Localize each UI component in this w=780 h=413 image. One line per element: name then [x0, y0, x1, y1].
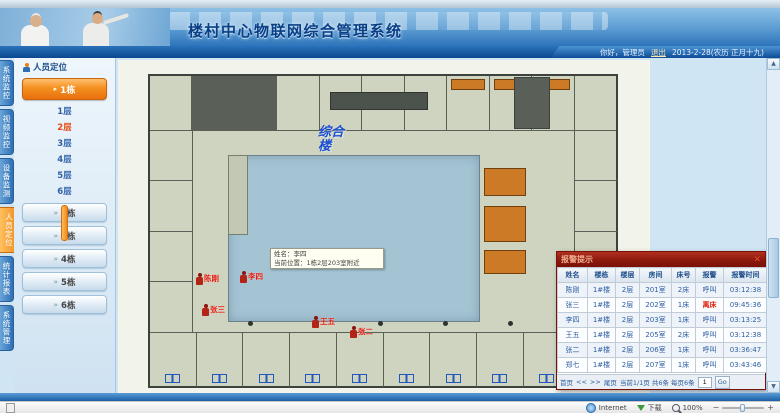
table-row[interactable]: 陈刚 1#楼 2层 201室 2床 呼叫 03:12:38 [558, 283, 768, 298]
col-header-floor: 楼层 [616, 268, 640, 283]
zoom-slider-knob[interactable] [740, 404, 745, 412]
person-marker-icon [350, 326, 357, 338]
cell-floor: 2层 [616, 358, 640, 373]
banner-photo [0, 8, 170, 46]
download-label: 下载 [648, 403, 662, 413]
table-row[interactable]: 李四 1#楼 2层 203室 1床 呼叫 03:13:25 [558, 313, 768, 328]
sidebar-building-6-button[interactable]: 6栋 [22, 295, 107, 314]
person-marker[interactable]: 李四 [240, 271, 263, 283]
building-1-label: 1栋 [60, 83, 75, 96]
user-info-bar: 你好，管理员 退出 2013-2-28(农历 正月十九) [600, 46, 764, 58]
table-row[interactable]: 郑七 1#楼 2层 207室 1床 呼叫 03:43:46 [558, 358, 768, 373]
scrollbar-thumb[interactable] [768, 238, 779, 298]
person-marker-name: 王五 [320, 316, 335, 327]
header-banner: 楼村中心物联网综合管理系统 [0, 8, 780, 46]
bed-icon [492, 374, 507, 383]
person-marker-icon [202, 304, 209, 316]
building-6-label: 6栋 [61, 299, 75, 311]
person-marker-name: 李四 [248, 271, 263, 282]
cell-floor: 2层 [616, 313, 640, 328]
zoom-indicator[interactable]: 100% [672, 404, 703, 412]
tooltip-name-line: 姓名：李四 [274, 250, 380, 259]
cell-alarm: 离床 [696, 298, 724, 313]
cell-floor: 2层 [616, 328, 640, 343]
col-header-building: 楼栋 [588, 268, 616, 283]
cell-alarm: 呼叫 [696, 328, 724, 343]
sidebar-floor-2[interactable]: 2层 [14, 119, 115, 135]
nav-tab-statistics[interactable]: 统计报表 [0, 256, 14, 302]
cell-time: 03:36:47 [724, 343, 768, 358]
sidebar-building-1-button[interactable]: 1栋 [22, 78, 107, 100]
magnifier-icon [672, 404, 680, 412]
pagination-bar: 首页 << >> 尾页 当前1/1页 共6条 每页6条 Go [557, 374, 765, 389]
room [150, 333, 197, 387]
person-marker[interactable]: 张三 [202, 304, 225, 316]
cell-bed: 2床 [672, 328, 696, 343]
alarm-popup-title: 报警提示 [561, 254, 593, 265]
security-zone-indicator: Internet [586, 403, 627, 413]
room [477, 333, 524, 387]
room [290, 333, 337, 387]
arrow-icon [54, 231, 59, 241]
person-positioning-icon [23, 63, 30, 72]
zoom-level-label: 100% [683, 404, 703, 412]
cell-time: 09:45:36 [724, 298, 768, 313]
col-header-room: 房间 [640, 268, 672, 283]
zoom-slider-track[interactable] [722, 407, 764, 409]
sidebar-floor-4[interactable]: 4层 [14, 151, 115, 167]
cell-name: 郑七 [558, 358, 588, 373]
column-dot [378, 321, 383, 326]
room [277, 76, 319, 130]
table-row[interactable]: 张三 1#楼 2层 202室 1床 离床 09:45:36 [558, 298, 768, 313]
main-area: 系统监控 视频监控 设备监测 人员定位 统计报表 系统管理 人员定位 1栋 1层… [0, 58, 780, 393]
bed-icon [446, 374, 461, 383]
page-number-input[interactable] [698, 377, 712, 388]
table-row[interactable]: 王五 1#楼 2层 205室 2床 呼叫 03:12:38 [558, 328, 768, 343]
panel-collapse-handle[interactable] [61, 205, 68, 241]
room [197, 333, 244, 387]
cell-floor: 2层 [616, 298, 640, 313]
floor-list: 1层 2层 3层 4层 5层 6层 [14, 103, 115, 199]
room [150, 130, 192, 181]
person-marker-icon [196, 273, 203, 285]
room [150, 232, 192, 283]
building-4-label: 4栋 [61, 253, 75, 265]
marker-tooltip: 姓名：李四 当前位置：1栋2层203室附近 [270, 248, 384, 269]
browser-edge-strip [0, 0, 780, 8]
room [235, 76, 277, 130]
person-marker-name: 张三 [210, 304, 225, 315]
cell-building: 1#楼 [588, 298, 616, 313]
cell-name: 陈刚 [558, 283, 588, 298]
furniture-block [484, 206, 526, 242]
dark-room [514, 77, 550, 129]
scroll-up-icon[interactable]: ▲ [767, 58, 780, 70]
pagination-last-button[interactable]: 尾页 [604, 377, 617, 387]
alarm-table-header-row: 姓名 楼栋 楼层 房间 床号 报警 报警时间 [558, 268, 768, 283]
cell-building: 1#楼 [588, 283, 616, 298]
scroll-down-icon[interactable]: ▼ [767, 381, 780, 393]
col-header-bed: 床号 [672, 268, 696, 283]
arrow-icon [54, 208, 59, 218]
photo-person-body [21, 25, 49, 46]
person-marker[interactable]: 王五 [312, 316, 335, 328]
app-window: 楼村中心物联网综合管理系统 你好，管理员 退出 2013-2-28(农历 正月十… [0, 0, 780, 413]
col-header-name: 姓名 [558, 268, 588, 283]
col-header-time: 报警时间 [724, 268, 768, 283]
panel-header: 人员定位 [14, 58, 115, 76]
download-indicator[interactable]: 下载 [637, 403, 662, 413]
user-greeting: 你好，管理员 [600, 47, 645, 58]
building-5-label: 5栋 [61, 276, 75, 288]
cell-time: 03:12:38 [724, 283, 768, 298]
pagination-go-button[interactable]: Go [715, 376, 730, 389]
sidebar-building-5-button[interactable]: 5栋 [22, 272, 107, 291]
globe-icon [586, 403, 596, 413]
floorplan-bottom-rooms [150, 332, 616, 387]
room [384, 333, 431, 387]
bed-icon [165, 374, 180, 383]
room [575, 76, 616, 130]
arrow-icon [54, 300, 59, 310]
person-marker-icon [312, 316, 319, 328]
cell-bed: 1床 [672, 358, 696, 373]
cell-alarm: 呼叫 [696, 343, 724, 358]
cell-alarm: 呼叫 [696, 283, 724, 298]
date-text: 2013-2-28(农历 正月十九) [672, 47, 764, 58]
sub-header-slant-decor [0, 46, 559, 58]
cell-name: 张二 [558, 343, 588, 358]
furniture-block [484, 250, 526, 274]
bed-icon [305, 374, 320, 383]
photo-person-head [92, 13, 103, 24]
cell-time: 03:13:25 [724, 313, 768, 328]
alarm-popup-titlebar: 报警提示 ✕ [557, 252, 765, 267]
cell-alarm: 呼叫 [696, 313, 724, 328]
person-marker[interactable]: 张二 [350, 326, 373, 338]
bed-icon [352, 374, 367, 383]
table-row[interactable]: 张二 1#楼 2层 206室 1床 呼叫 03:36:47 [558, 343, 768, 358]
zoom-in-icon[interactable]: + [767, 404, 774, 412]
cell-bed: 2床 [672, 283, 696, 298]
person-marker[interactable]: 陈刚 [196, 273, 219, 285]
person-marker-name: 张二 [358, 326, 373, 337]
sidebar-floor-1[interactable]: 1层 [14, 103, 115, 119]
cell-name: 王五 [558, 328, 588, 343]
col-header-alarm: 报警 [696, 268, 724, 283]
cell-room: 206室 [640, 343, 672, 358]
bed-icon [212, 374, 227, 383]
room [447, 76, 489, 130]
column-dot [508, 321, 513, 326]
person-marker-icon [240, 271, 247, 283]
sidebar-building-4-button[interactable]: 4栋 [22, 249, 107, 268]
cell-room: 207室 [640, 358, 672, 373]
courtyard [228, 155, 480, 322]
pagination-next-button[interactable]: >> [590, 378, 601, 386]
document-icon [6, 403, 15, 413]
photo-person-body [83, 23, 109, 46]
stage-block [330, 92, 428, 110]
status-left [6, 403, 15, 413]
zoom-out-icon[interactable]: − [713, 404, 720, 412]
cabinet-icon [451, 79, 485, 90]
room [150, 282, 192, 332]
sidebar-floor-5[interactable]: 5层 [14, 167, 115, 183]
download-icon [637, 405, 645, 411]
close-icon[interactable]: ✕ [753, 255, 761, 265]
tooltip-location-line: 当前位置：1栋2层203室附近 [274, 259, 380, 268]
cell-floor: 2层 [616, 343, 640, 358]
bottom-blue-bar [0, 393, 780, 401]
bed-icon [259, 374, 274, 383]
photo-person-arm [103, 13, 129, 25]
nav-tab-device-monitoring[interactable]: 设备监测 [0, 158, 14, 204]
cell-alarm: 呼叫 [696, 358, 724, 373]
pagination-first-button[interactable]: 首页 [560, 377, 573, 387]
floorplan-left-rooms [150, 130, 193, 332]
room [192, 76, 234, 130]
nav-tab-video-monitoring[interactable]: 视频监控 [0, 109, 14, 155]
cell-room: 201室 [640, 283, 672, 298]
arrow-icon [54, 84, 58, 94]
sidebar-floor-6[interactable]: 6层 [14, 183, 115, 199]
page-title: 楼村中心物联网综合管理系统 [188, 20, 403, 41]
pagination-prev-button[interactable]: << [576, 378, 587, 386]
person-marker-name: 陈刚 [204, 273, 219, 284]
arrow-icon [54, 254, 59, 264]
cell-time: 03:12:38 [724, 328, 768, 343]
cell-bed: 1床 [672, 313, 696, 328]
logout-link[interactable]: 退出 [651, 47, 666, 58]
room [575, 181, 617, 232]
cell-time: 03:43:46 [724, 358, 768, 373]
cell-bed: 1床 [672, 298, 696, 313]
column-dot [248, 321, 253, 326]
arrow-icon [54, 277, 59, 287]
room [430, 333, 477, 387]
cell-room: 202室 [640, 298, 672, 313]
bed-icon [399, 374, 414, 383]
stairwell-block [228, 155, 248, 235]
cell-building: 1#楼 [588, 343, 616, 358]
zone-label: Internet [599, 404, 627, 412]
cell-name: 张三 [558, 298, 588, 313]
nav-tab-system-monitoring[interactable]: 系统监控 [0, 60, 14, 106]
cell-room: 203室 [640, 313, 672, 328]
cell-building: 1#楼 [588, 328, 616, 343]
bed-icon [539, 374, 554, 383]
furniture-block [484, 168, 526, 196]
sidebar-panel: 人员定位 1栋 1层 2层 3层 4层 5层 6层 2栋 3栋 [14, 58, 116, 393]
status-bar: Internet 下载 100% − + [0, 401, 780, 413]
cell-building: 1#楼 [588, 313, 616, 328]
room [575, 130, 617, 181]
cell-room: 205室 [640, 328, 672, 343]
column-dot [443, 321, 448, 326]
room [337, 333, 384, 387]
building-name-label: 综合楼 [318, 126, 354, 154]
room [150, 181, 192, 232]
sub-header-bar: 你好，管理员 退出 2013-2-28(农历 正月十九) [0, 46, 780, 58]
vertical-scrollbar[interactable]: ▲ ▼ [766, 58, 780, 393]
cell-name: 李四 [558, 313, 588, 328]
nav-tab-system-management[interactable]: 系统管理 [0, 305, 14, 351]
cell-floor: 2层 [616, 283, 640, 298]
room [150, 76, 192, 130]
cell-building: 1#楼 [588, 358, 616, 373]
zoom-slider[interactable]: − + [713, 404, 774, 412]
status-right: Internet 下载 100% − + [586, 403, 774, 413]
alarm-table: 姓名 楼栋 楼层 房间 床号 报警 报警时间 陈刚 1#楼 2层 201室 2床… [557, 267, 768, 373]
panel-title: 人员定位 [33, 61, 67, 73]
sidebar-floor-3[interactable]: 3层 [14, 135, 115, 151]
room [243, 333, 290, 387]
pagination-info: 当前1/1页 共6条 每页6条 [620, 377, 695, 387]
photo-person-head [30, 15, 42, 27]
alarm-popup: 报警提示 ✕ 姓名 楼栋 楼层 房间 床号 报警 报警时间 陈刚 1#楼 2层 [556, 251, 766, 390]
cell-bed: 1床 [672, 343, 696, 358]
